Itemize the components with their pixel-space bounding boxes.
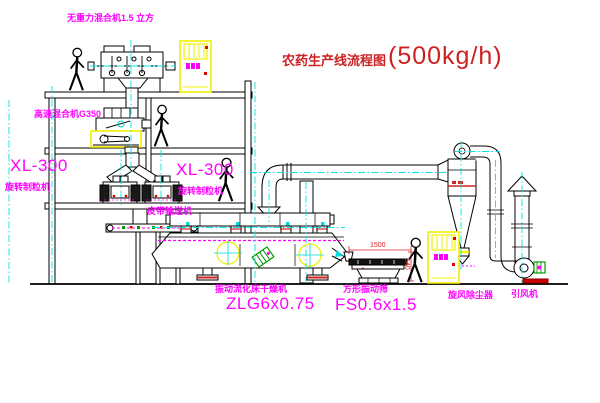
title-name: 农药生产线流程图: [282, 50, 386, 69]
label-screen-name: 方形振动筛: [343, 285, 388, 294]
granulator-left: [100, 176, 140, 203]
label-granulator-right-model: XL-300: [176, 161, 234, 178]
dimension-screen-height: 540: [403, 258, 410, 270]
person-roof: [70, 48, 84, 90]
label-cyclone: 旋风除尘器: [448, 291, 493, 300]
induced-draft-fan: [514, 258, 548, 283]
roof-slab: [45, 92, 252, 98]
conveyor-feed-chute: [133, 209, 147, 225]
label-fan: 引风机: [511, 290, 538, 299]
dimension-screen-length: 1500: [370, 242, 386, 249]
label-granulator-left-name: 旋转制粒机: [5, 183, 50, 192]
label-fluid-bed-name: 振动流化床干燥机: [215, 285, 287, 294]
person-floor2: [155, 105, 169, 146]
label-gravity-mixer: 无重力混合机1.5 立方: [67, 14, 154, 23]
mixer-discharge-chute: [126, 88, 138, 108]
cyclone-inlet-reducer: [438, 160, 448, 182]
diagram-title: 农药生产线流程图 (500kg/h): [282, 42, 503, 71]
label-high-speed-mixer: 高速混合机G350: [34, 110, 101, 119]
gravity-free-mixer: [88, 46, 175, 108]
cyclone-outlet-pipe: [470, 146, 524, 272]
pesticide-line-flow-diagram: 农药生产线流程图 (500kg/h) 无重力混合机1.5 立方 高速混合机G35…: [0, 0, 600, 403]
label-fluid-bed-model: ZLG6x0.75: [226, 295, 315, 312]
person-ground: [408, 238, 423, 282]
control-cabinet-ground: [428, 232, 459, 283]
label-belt-conveyor: 皮带输送机: [147, 207, 192, 216]
exhaust-duct: [258, 160, 448, 219]
title-capacity: (500kg/h): [388, 42, 503, 71]
label-screen-model: FS0.6x1.5: [335, 296, 417, 313]
label-granulator-right-name: 旋转制粒机: [178, 187, 223, 196]
control-cabinet-top: [180, 41, 211, 92]
label-granulator-left-model: XL-300: [10, 157, 68, 174]
